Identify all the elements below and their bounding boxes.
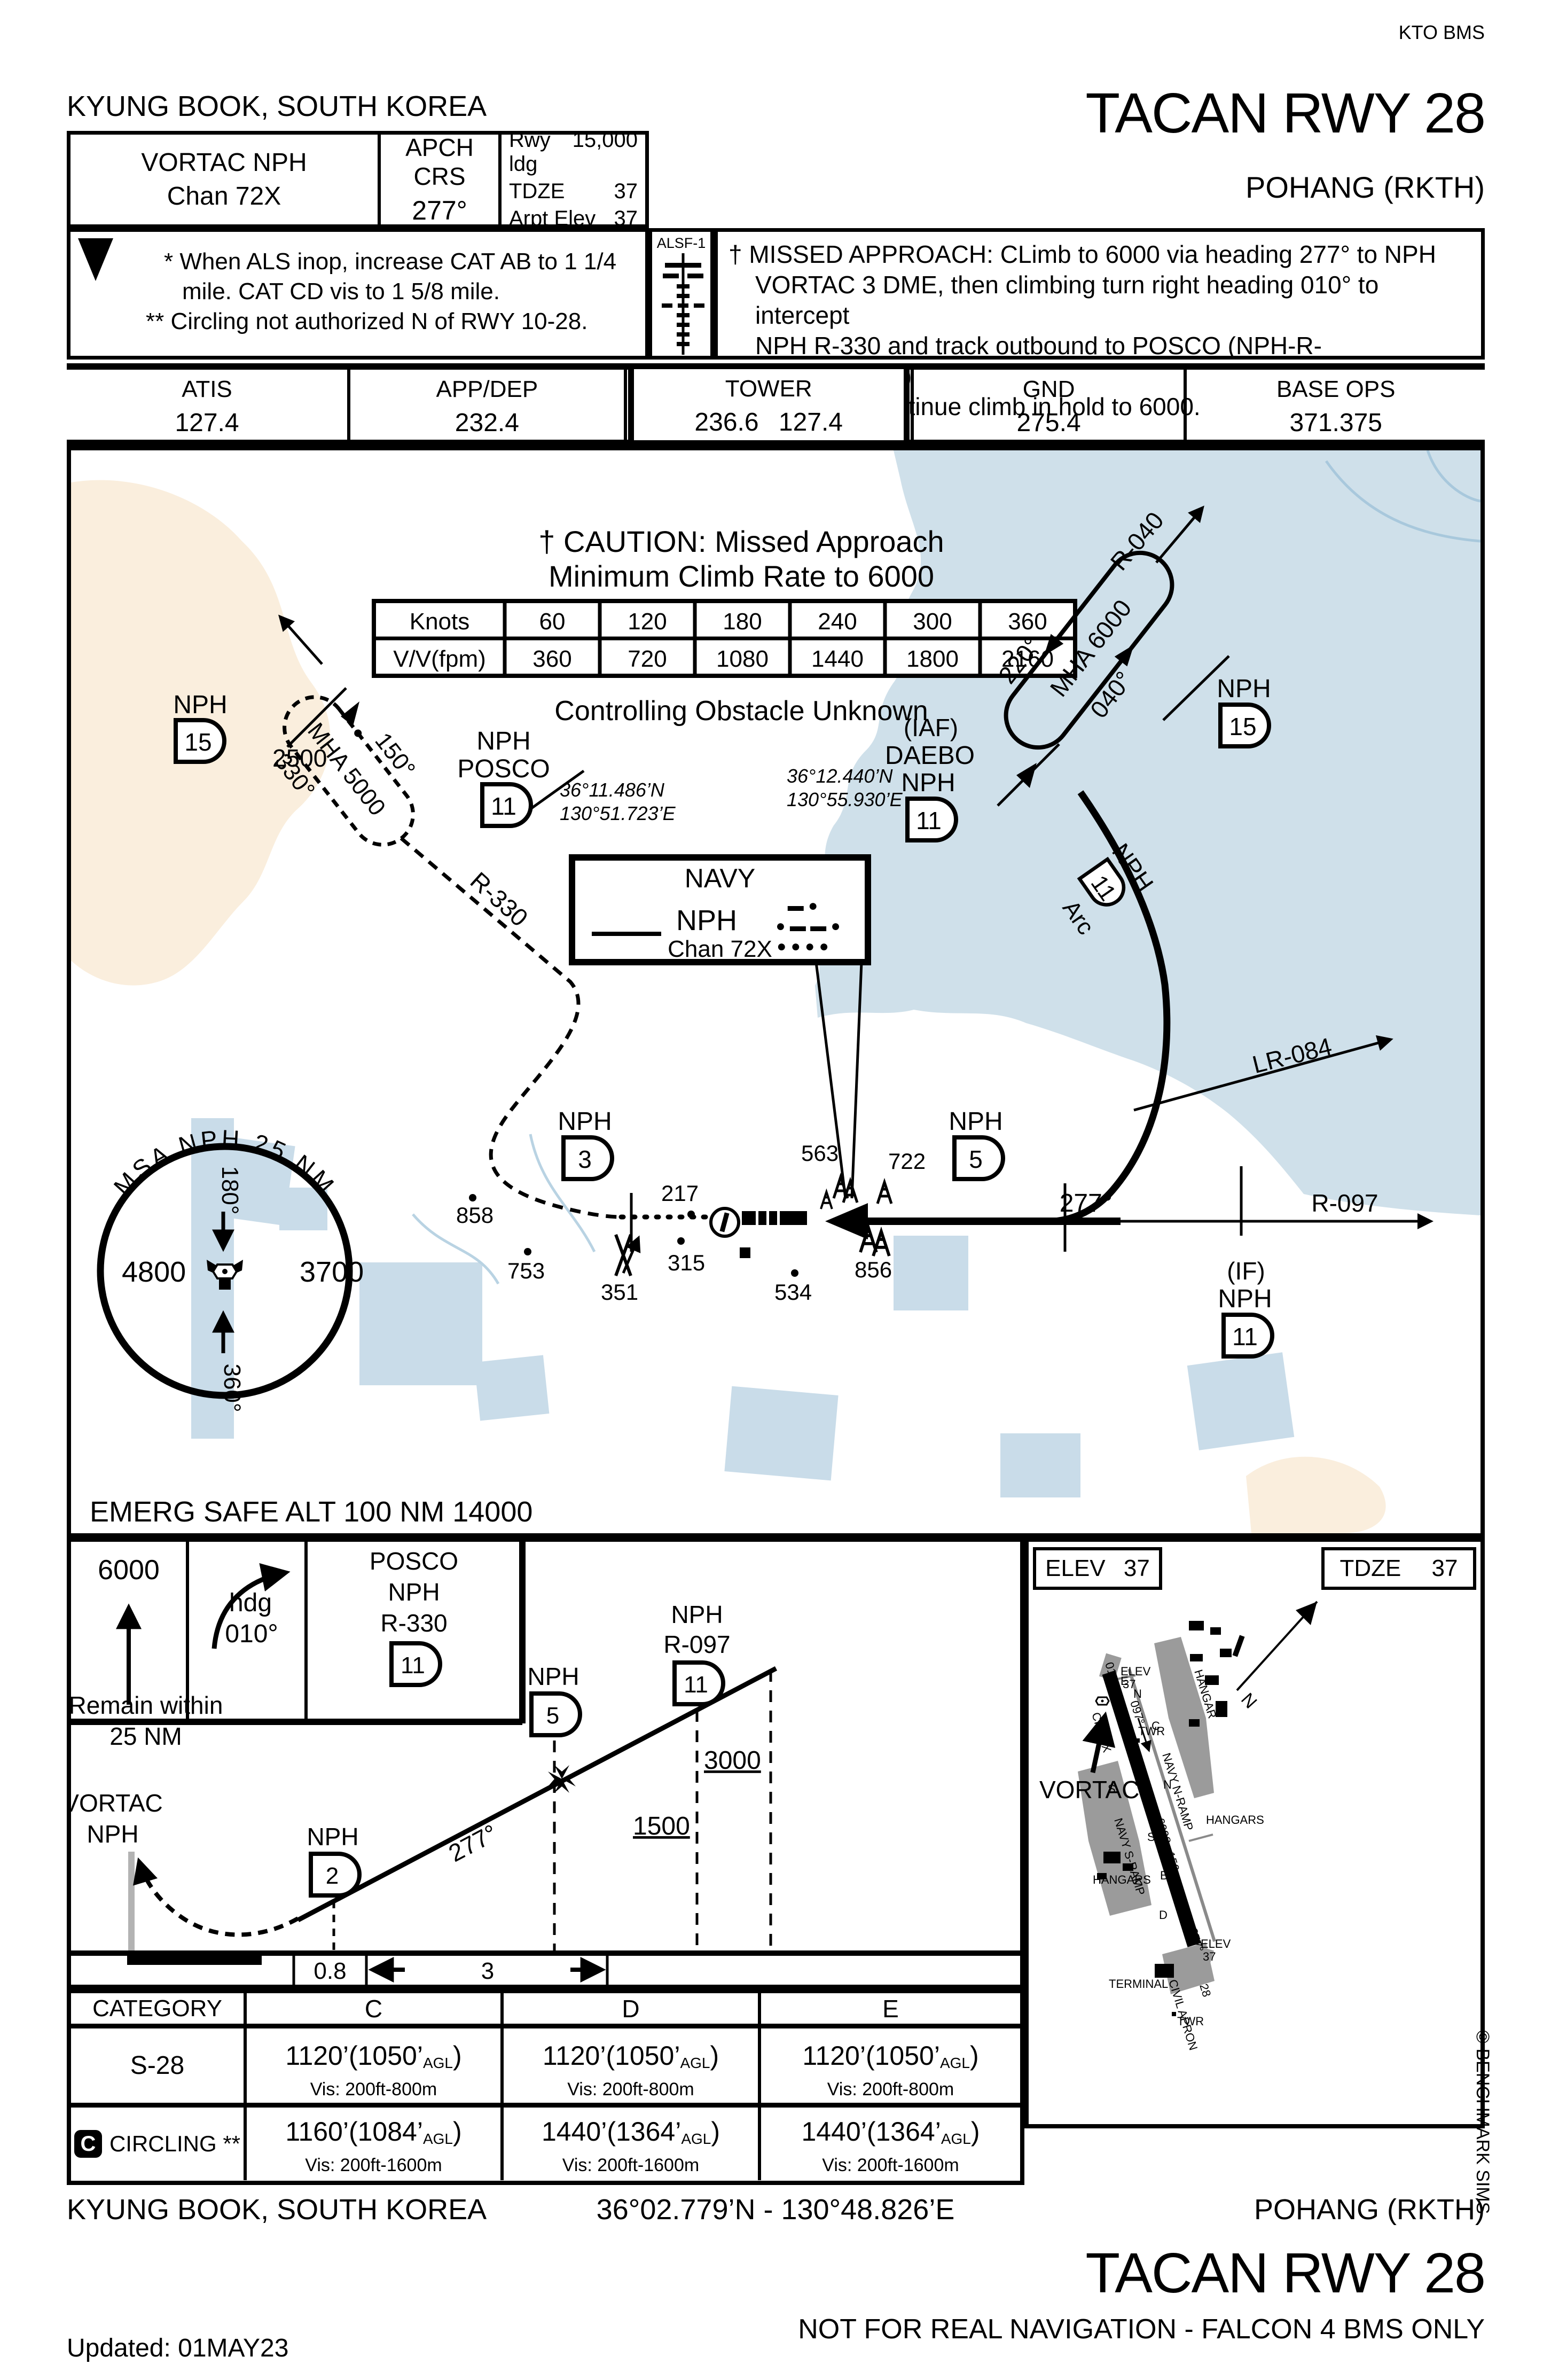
terrain-area-se <box>1246 1457 1386 1533</box>
remain-within: Remain within <box>71 1691 223 1719</box>
atis-value: 127.4 <box>67 408 347 438</box>
missed-approach-path <box>139 1862 298 1934</box>
approach-chart-page: KTO BMS KYUNG BOOK, SOUTH KOREA TACAN RW… <box>0 0 1551 2380</box>
baseops-cell: BASE OPS 371.375 <box>1187 370 1485 440</box>
profile-diagram: 6000 hdg 010° POSCO NPH R-330 11 Remain … <box>71 1542 1020 1985</box>
circling-badge-icon: C <box>74 2130 102 2158</box>
approach-course-box: APCH CRS 277° <box>381 135 502 224</box>
if-fix: (IF) NPH 11 <box>1218 1257 1272 1356</box>
sketch-tdze-label: TDZE <box>1340 1555 1401 1582</box>
msa-180: 180° <box>217 1166 243 1214</box>
svg-text:S: S <box>1147 1830 1155 1844</box>
profile-vortac: VORTAC <box>71 1789 163 1817</box>
sketch-tdze-value: 37 <box>1432 1555 1458 1582</box>
baseops-label: BASE OPS <box>1187 376 1485 403</box>
posco-name: POSCO <box>457 755 550 783</box>
city-name-top: KYUNG BOOK, SOUTH KOREA <box>67 90 487 123</box>
caution-title-2: Minimum Climb Rate to 6000 <box>549 559 934 593</box>
daebo-dme: 11 <box>916 807 942 834</box>
circling-row: C CIRCLING ** 1160’(1084’AGL) Vis: 200ft… <box>71 2108 1020 2180</box>
obstacle-315: 315 <box>668 1250 705 1275</box>
appdep-value: 232.4 <box>350 408 624 438</box>
col-d: D <box>504 1993 761 2024</box>
obstacle-563: 563 <box>801 1141 839 1166</box>
emergency-safe-alt: EMERG SAFE ALT 100 NM 14000 <box>90 1496 532 1528</box>
sketch-elev-box: ELEV37 <box>1033 1547 1162 1590</box>
circling-label: CIRCLING ** <box>109 2131 240 2157</box>
obstacle-351: 351 <box>601 1279 638 1305</box>
svg-text:B: B <box>1160 1869 1168 1882</box>
terminal-building <box>1155 1964 1174 1978</box>
obstacle-753: 753 <box>507 1258 545 1283</box>
p-nph2-dme: 2 <box>326 1863 339 1889</box>
alsf-label: ALSF-1 <box>652 235 710 252</box>
nph15e-name: NPH <box>1217 675 1271 703</box>
nph5-dme: 5 <box>969 1145 983 1173</box>
frequency-strip: ATIS 127.4 APP/DEP 232.4 TOWER 236.6 127… <box>67 363 1485 446</box>
plan-view: † CAUTION: Missed Approach Minimum Climb… <box>67 446 1485 1538</box>
minimums-table: CATEGORY C D E S-28 1120’(1050’AGL) Vis:… <box>67 1989 1024 2185</box>
rwy-ldg-value: 15,000 <box>573 128 638 176</box>
ma-posco: POSCO <box>370 1547 458 1575</box>
gnd-value: 275.4 <box>914 408 1184 438</box>
knots-label: Knots <box>410 608 470 635</box>
morse-h: ● ● ● ● <box>777 938 829 955</box>
vv-360: 360 <box>532 646 571 672</box>
svg-text:E: E <box>1121 1674 1129 1688</box>
vv-1800: 1800 <box>906 646 959 672</box>
p-nph2-name: NPH <box>307 1823 358 1851</box>
procedure-title-top: TACAN RWY 28 <box>1085 81 1485 146</box>
altitude-3000: 3000 <box>704 1746 761 1775</box>
profile-vortac-ident: NPH <box>87 1820 138 1848</box>
climb-rate-table: Knots 60 120 180 240 300 360 V/V(fpm) 36… <box>374 601 1075 676</box>
r097-label: R-097 <box>1311 1189 1378 1217</box>
knots-180: 180 <box>723 608 762 635</box>
vv-720: 720 <box>628 646 667 672</box>
r097-dme: 11 <box>684 1672 708 1698</box>
north-label: N <box>1237 1689 1261 1713</box>
nph5-name: NPH <box>949 1107 1002 1136</box>
airport-name-bottom: POHANG (RKTH) <box>1254 2193 1485 2226</box>
col-e: E <box>761 1993 1020 2024</box>
tower-cell: TOWER 236.6 127.4 <box>627 370 911 440</box>
posco-dme: 11 <box>491 792 516 820</box>
nph3-name: NPH <box>558 1107 612 1136</box>
if-label: (IF) <box>1227 1257 1265 1285</box>
urban-areas <box>191 1118 1294 1497</box>
not-for-navigation-note: NOT FOR REAL NAVIGATION - FALCON 4 BMS O… <box>798 2313 1485 2345</box>
r097-radial: R-097 <box>663 1630 730 1658</box>
sketch-elev-value: 37 <box>1124 1555 1150 1582</box>
msa-west-alt: 4800 <box>122 1256 186 1288</box>
caution-title-1: † CAUTION: Missed Approach <box>538 525 944 558</box>
missed-approach-box: † MISSED APPROACH: CLimb to 6000 via hea… <box>714 228 1485 360</box>
baseops-value: 371.375 <box>1187 408 1485 438</box>
arpt-elev-label: Arpt Elev <box>509 207 596 231</box>
s28-label: S-28 <box>71 2028 247 2103</box>
nph3-dme: 3 <box>578 1145 592 1173</box>
vv-label: V/V(fpm) <box>393 646 486 672</box>
hangars-label-1: HANGARS <box>1206 1813 1264 1827</box>
vortac-callout: VORTAC <box>1039 1776 1139 1804</box>
nph15w-dme: 15 <box>184 728 211 756</box>
nph15-fix-west: NPH 15 <box>173 691 227 762</box>
nph15w-name: NPH <box>173 691 227 719</box>
procedure-title-bottom: TACAN RWY 28 <box>1085 2241 1485 2306</box>
header-boxes: VORTAC NPH Chan 72X APCH CRS 277° Rwy ld… <box>67 131 649 228</box>
altitude-1500: 1500 <box>633 1812 690 1840</box>
vv-1440: 1440 <box>811 646 864 672</box>
ma-hdg-value: 010° <box>225 1620 278 1648</box>
ma-nph: NPH <box>388 1578 440 1606</box>
knots-300: 300 <box>913 608 952 635</box>
circling-d-mins: 1440’(1364’AGL) Vis: 200ft-1600m <box>504 2108 761 2180</box>
svg-text:T: T <box>89 241 103 267</box>
trouble-t-icon: T <box>77 237 114 282</box>
nph15e-dme: 15 <box>1229 713 1256 740</box>
terminal-label: TERMINAL <box>1109 1977 1168 1991</box>
knots-360: 360 <box>1008 608 1047 635</box>
elev-btm-l2: 37 <box>1203 1950 1216 1963</box>
svg-text:N: N <box>1133 1687 1142 1700</box>
navy-ident: NPH <box>676 904 737 937</box>
s28-c-mins: 1120’(1050’AGL) Vis: 200ft-800m <box>247 2028 504 2103</box>
daebo-navaid: NPH <box>901 769 955 797</box>
tdze-value: 37 <box>614 180 638 204</box>
elev-btm-l1: ELEV <box>1201 1937 1231 1950</box>
navaid-box: VORTAC NPH Chan 72X <box>70 135 381 224</box>
if-dme: 11 <box>1232 1323 1258 1351</box>
airport-name-top: POHANG (RKTH) <box>1245 170 1485 205</box>
nph5-fix: NPH 5 <box>949 1107 1065 1252</box>
runway-data-box: Rwy ldg15,000 TDZE37 Arpt Elev37 <box>502 135 645 224</box>
msa-360: 360° <box>219 1363 245 1412</box>
ma-r330: R-330 <box>380 1609 447 1637</box>
sketch-elev-label: ELEV <box>1045 1555 1106 1582</box>
dist-3: 3 <box>481 1958 494 1984</box>
daebo-lon: 130°55.930’E <box>787 789 903 810</box>
note-line-3: ** Circling not authorized N of RWY 10-2… <box>146 307 616 337</box>
msa-east-alt: 3700 <box>300 1256 364 1288</box>
remain-25nm: 25 NM <box>109 1722 182 1750</box>
profile-nph2-fix: NPH 2 <box>307 1823 359 1953</box>
copyright-vertical: © BENCHMARK SIMS <box>1472 2030 1493 2214</box>
note-line-1: * When ALS inop, increase CAT AB to 1 1/… <box>164 247 616 277</box>
posco-min-alt: 2500 <box>272 744 327 772</box>
posco-lat: 36°11.486’N <box>560 779 665 801</box>
airport-sketch: 01 ELEV 37 097° CH 72X TWR HANGAR HANGAR… <box>1029 1542 1480 2124</box>
dist-08: 0.8 <box>314 1958 346 1984</box>
rwy-ldg-label: Rwy ldg <box>509 128 573 176</box>
daebo-iaf: (IAF) <box>904 714 958 742</box>
knots-120: 120 <box>628 608 667 635</box>
s28-e-mins: 1120’(1050’AGL) Vis: 200ft-800m <box>761 2028 1020 2103</box>
msa-circle: MSA NPH 25 NM 180° 360° 4800 3700 <box>100 1125 364 1413</box>
r097-navaid: NPH <box>671 1601 723 1628</box>
ma-hdg-label: hdg <box>229 1589 272 1617</box>
atis-label: ATIS <box>67 376 347 403</box>
appdep-cell: APP/DEP 232.4 <box>350 370 627 440</box>
if-navaid: NPH <box>1218 1285 1272 1313</box>
atis-cell: ATIS 127.4 <box>67 370 350 440</box>
svg-text:C: C <box>1151 1719 1160 1733</box>
distance-scale: 0.8 3 <box>71 1953 1020 1985</box>
ma-dme11: 11 <box>401 1652 425 1679</box>
apch-crs-label: APCH CRS <box>381 133 498 191</box>
controlling-obstacle-note: Controlling Obstacle Unknown <box>554 696 928 727</box>
note-line-2: mile. CAT CD vis to 1 5/8 mile. <box>182 277 616 307</box>
obstacle-856: 856 <box>855 1257 892 1282</box>
col-c: C <box>247 1993 504 2024</box>
profile-nph5-fix: NPH 5 <box>527 1663 580 1953</box>
ma-altitude: 6000 <box>98 1555 160 1586</box>
obstacle-217: 217 <box>661 1181 699 1206</box>
alsf-icon <box>662 253 704 355</box>
knots-60: 60 <box>539 608 566 635</box>
airport-sketch-panel: 01 ELEV 37 097° CH 72X TWR HANGAR HANGAR… <box>1024 1538 1485 2128</box>
daebo-lat: 36°12.440’N <box>787 765 894 787</box>
svg-text:D: D <box>1159 1908 1168 1922</box>
north-arrow: N <box>1237 1602 1317 1713</box>
profile-view: 6000 hdg 010° POSCO NPH R-330 11 Remain … <box>67 1538 1024 1989</box>
knots-240: 240 <box>818 608 857 635</box>
tower-label: TOWER <box>634 376 904 402</box>
tower-value: 236.6 127.4 <box>634 408 904 437</box>
posco-navaid: NPH <box>476 727 530 755</box>
sketch-tdze-box: TDZE37 <box>1321 1547 1476 1590</box>
plan-view-map: † CAUTION: Missed Approach Minimum Climb… <box>71 450 1480 1533</box>
profile-r097-fix: NPH R-097 11 <box>663 1601 730 1953</box>
obstacle-858: 858 <box>456 1203 493 1228</box>
p-nph5-name: NPH <box>527 1663 579 1690</box>
circling-c-mins: 1160’(1084’AGL) Vis: 200ft-1600m <box>247 2108 504 2180</box>
svg-text:A: A <box>1181 1914 1189 1927</box>
obstacle-722: 722 <box>888 1149 926 1174</box>
navy-label: NAVY <box>685 863 755 893</box>
morse-p: ● ▬ ▬ ● <box>775 917 840 935</box>
airport-symbol <box>711 1192 832 1258</box>
missed-line-2: VORTAC 3 DME, then climbing turn right h… <box>755 270 1470 331</box>
missed-line-1: † MISSED APPROACH: CLimb to 6000 via hea… <box>728 239 1470 270</box>
sketch-vortac-icon <box>1096 1697 1109 1705</box>
daebo-name: DAEBO <box>885 742 975 770</box>
runway-profile-bar <box>127 1953 262 1965</box>
gnd-cell: GND 275.4 <box>911 370 1187 440</box>
appdep-label: APP/DEP <box>350 376 624 403</box>
notes-box: T * When ALS inop, increase CAT AB to 1 … <box>67 228 649 360</box>
obstacle-534: 534 <box>774 1279 812 1305</box>
p-nph5-dme: 5 <box>546 1703 559 1729</box>
navaid-name: VORTAC NPH <box>70 148 378 177</box>
s28-row: S-28 1120’(1050’AGL) Vis: 200ft-800m 112… <box>71 2028 1020 2108</box>
navy-channel: Chan 72X <box>668 936 772 962</box>
updated-date: Updated: 01MAY23 <box>67 2334 288 2363</box>
arpt-elev-value: 37 <box>614 207 638 231</box>
apch-crs-value: 277° <box>381 195 498 226</box>
alsf-box: ALSF-1 <box>649 228 714 360</box>
s28-d-mins: 1120’(1050’AGL) Vis: 200ft-800m <box>504 2028 761 2103</box>
tdze-label: TDZE <box>509 180 565 204</box>
svg-text:N: N <box>1163 1778 1172 1791</box>
nph3-fix: NPH 3 <box>558 1107 631 1252</box>
col-category: CATEGORY <box>71 1993 247 2024</box>
circling-e-mins: 1440’(1364’AGL) Vis: 200ft-1600m <box>761 2108 1020 2180</box>
gnd-label: GND <box>914 376 1184 403</box>
posco-lon: 130°51.723’E <box>560 802 676 824</box>
chart-series-code: KTO BMS <box>1399 21 1485 44</box>
vv-1080: 1080 <box>716 646 769 672</box>
morse-n: ▬ ● <box>788 897 818 915</box>
navaid-channel: Chan 72X <box>70 182 378 211</box>
